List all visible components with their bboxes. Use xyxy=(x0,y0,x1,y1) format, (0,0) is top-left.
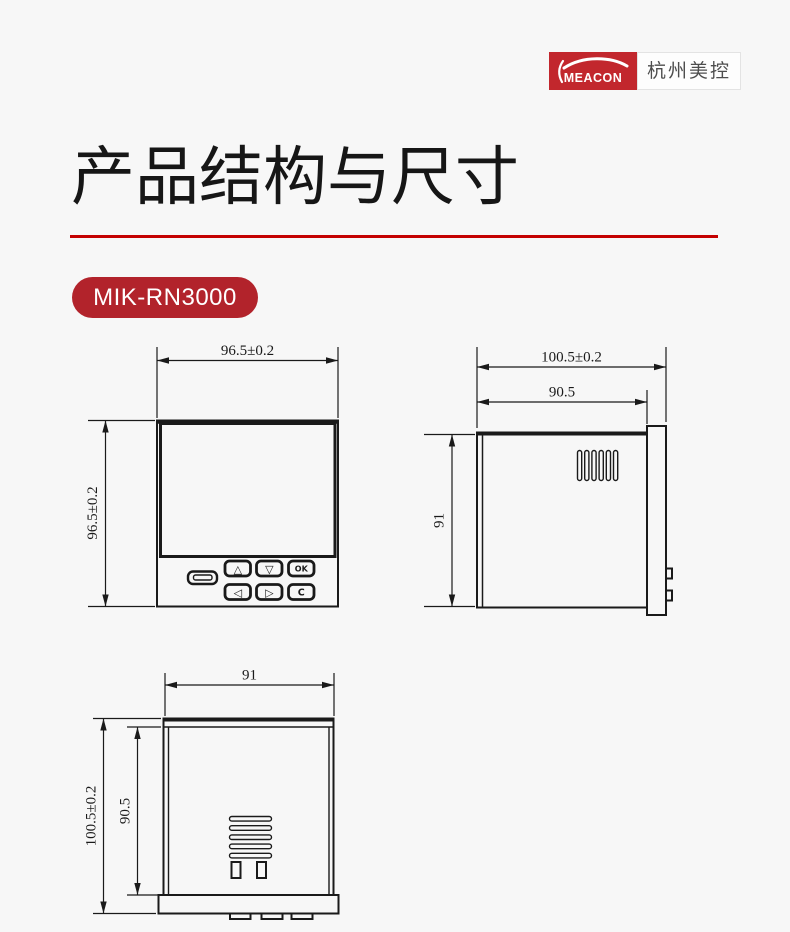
mounting-tab xyxy=(666,569,672,579)
bottom-width-dimension: 91 xyxy=(165,668,334,717)
up-arrow-icon: △ xyxy=(234,563,243,576)
ok-key-label: OK xyxy=(295,565,309,574)
model-badge: MIK-RN3000 xyxy=(72,277,258,318)
bottom-body-depth-dimension: 90.5 xyxy=(118,727,162,895)
foot-tab xyxy=(262,914,283,920)
brand-logo-mark: MEACON xyxy=(549,52,637,90)
mounting-tab xyxy=(666,591,672,601)
side-view-diagram: 100.5±0.2 90.5 91 xyxy=(415,340,677,622)
side-height-dimension: 91 xyxy=(424,435,475,607)
keypad: △ ▽ OK ◁ ▷ C xyxy=(225,561,314,600)
right-arrow-icon: ▷ xyxy=(265,586,274,599)
rear-bezel xyxy=(159,895,339,914)
brand-logo: MEACON 杭州美控 xyxy=(549,52,741,90)
bottom-device-outline xyxy=(159,719,339,920)
side-body-depth-dimension: 90.5 xyxy=(477,385,647,425)
clear-key-label: C xyxy=(298,588,305,599)
product-dimensions-page: MEACON 杭州美控 产品结构与尺寸 MIK-RN3000 96.5±0.2 … xyxy=(0,0,790,932)
front-panel-body xyxy=(157,421,338,607)
front-view-diagram: 96.5±0.2 96.5±0.2 △ xyxy=(85,340,345,612)
side-body-depth-label: 90.5 xyxy=(549,385,575,401)
vent-slots xyxy=(578,451,618,481)
company-name: 杭州美控 xyxy=(647,62,731,81)
side-height-label: 91 xyxy=(432,513,448,528)
connector-cutout xyxy=(232,862,241,878)
front-bezel-edge xyxy=(647,426,666,615)
side-case-body xyxy=(477,433,647,608)
front-width-label: 96.5±0.2 xyxy=(221,343,274,359)
connector-cutout xyxy=(257,862,266,878)
down-arrow-icon: ▽ xyxy=(265,563,274,576)
bottom-case-body xyxy=(164,719,334,896)
vent-slats xyxy=(230,817,272,858)
front-width-dimension: 96.5±0.2 xyxy=(157,343,338,418)
front-device-outline: △ ▽ OK ◁ ▷ C xyxy=(157,421,338,607)
left-arrow-icon: ◁ xyxy=(234,586,243,599)
bottom-view-diagram: 91 100.5±0.2 90.5 xyxy=(85,665,347,927)
front-height-dimension: 96.5±0.2 xyxy=(85,421,155,607)
usb-port-slot xyxy=(194,575,213,580)
swoosh-icon xyxy=(549,52,637,90)
bottom-body-depth-label: 90.5 xyxy=(118,798,134,824)
front-height-label: 96.5±0.2 xyxy=(85,486,101,539)
title-underline xyxy=(70,235,718,238)
bottom-total-depth-label: 100.5±0.2 xyxy=(84,786,100,847)
side-device-outline xyxy=(477,426,672,615)
side-total-depth-label: 100.5±0.2 xyxy=(541,350,602,366)
page-title: 产品结构与尺寸 xyxy=(71,144,519,211)
foot-tab xyxy=(230,914,251,920)
model-badge-label: MIK-RN3000 xyxy=(93,284,237,312)
bottom-width-label: 91 xyxy=(242,668,257,684)
brand-logo-text-box: 杭州美控 xyxy=(637,52,741,90)
foot-tab xyxy=(292,914,313,920)
display-area xyxy=(161,424,336,557)
